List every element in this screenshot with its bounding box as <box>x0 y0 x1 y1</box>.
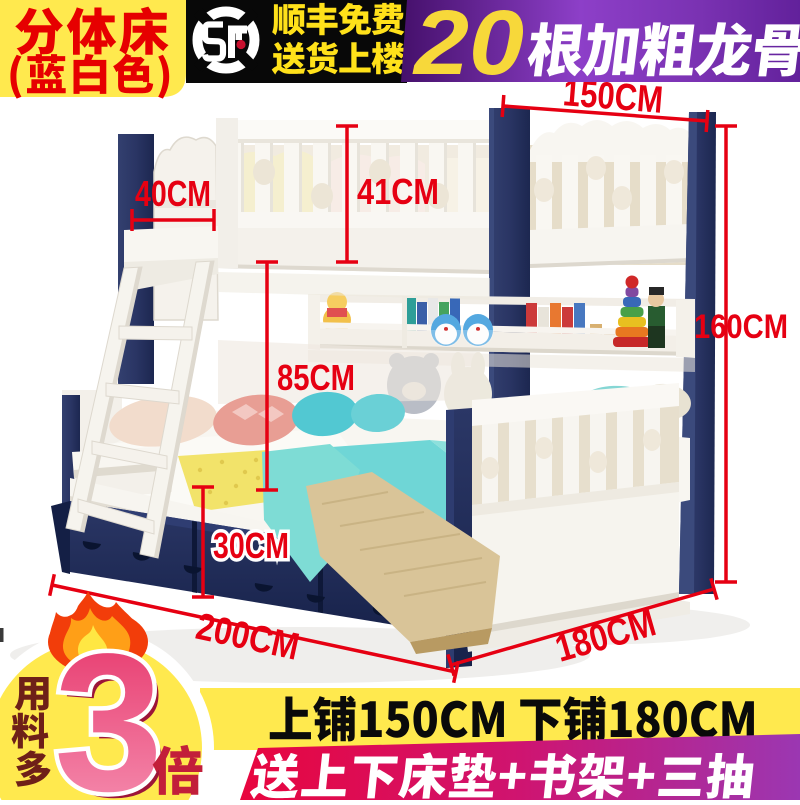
svg-text:41CM: 41CM <box>357 171 439 212</box>
svg-text:85CM: 85CM <box>277 357 355 398</box>
svg-text:30CM: 30CM <box>213 525 289 566</box>
svg-text:20: 20 <box>412 0 524 94</box>
svg-text:3: 3 <box>54 613 163 800</box>
svg-text:40CM: 40CM <box>135 173 211 214</box>
svg-text:160CM: 160CM <box>694 308 788 346</box>
